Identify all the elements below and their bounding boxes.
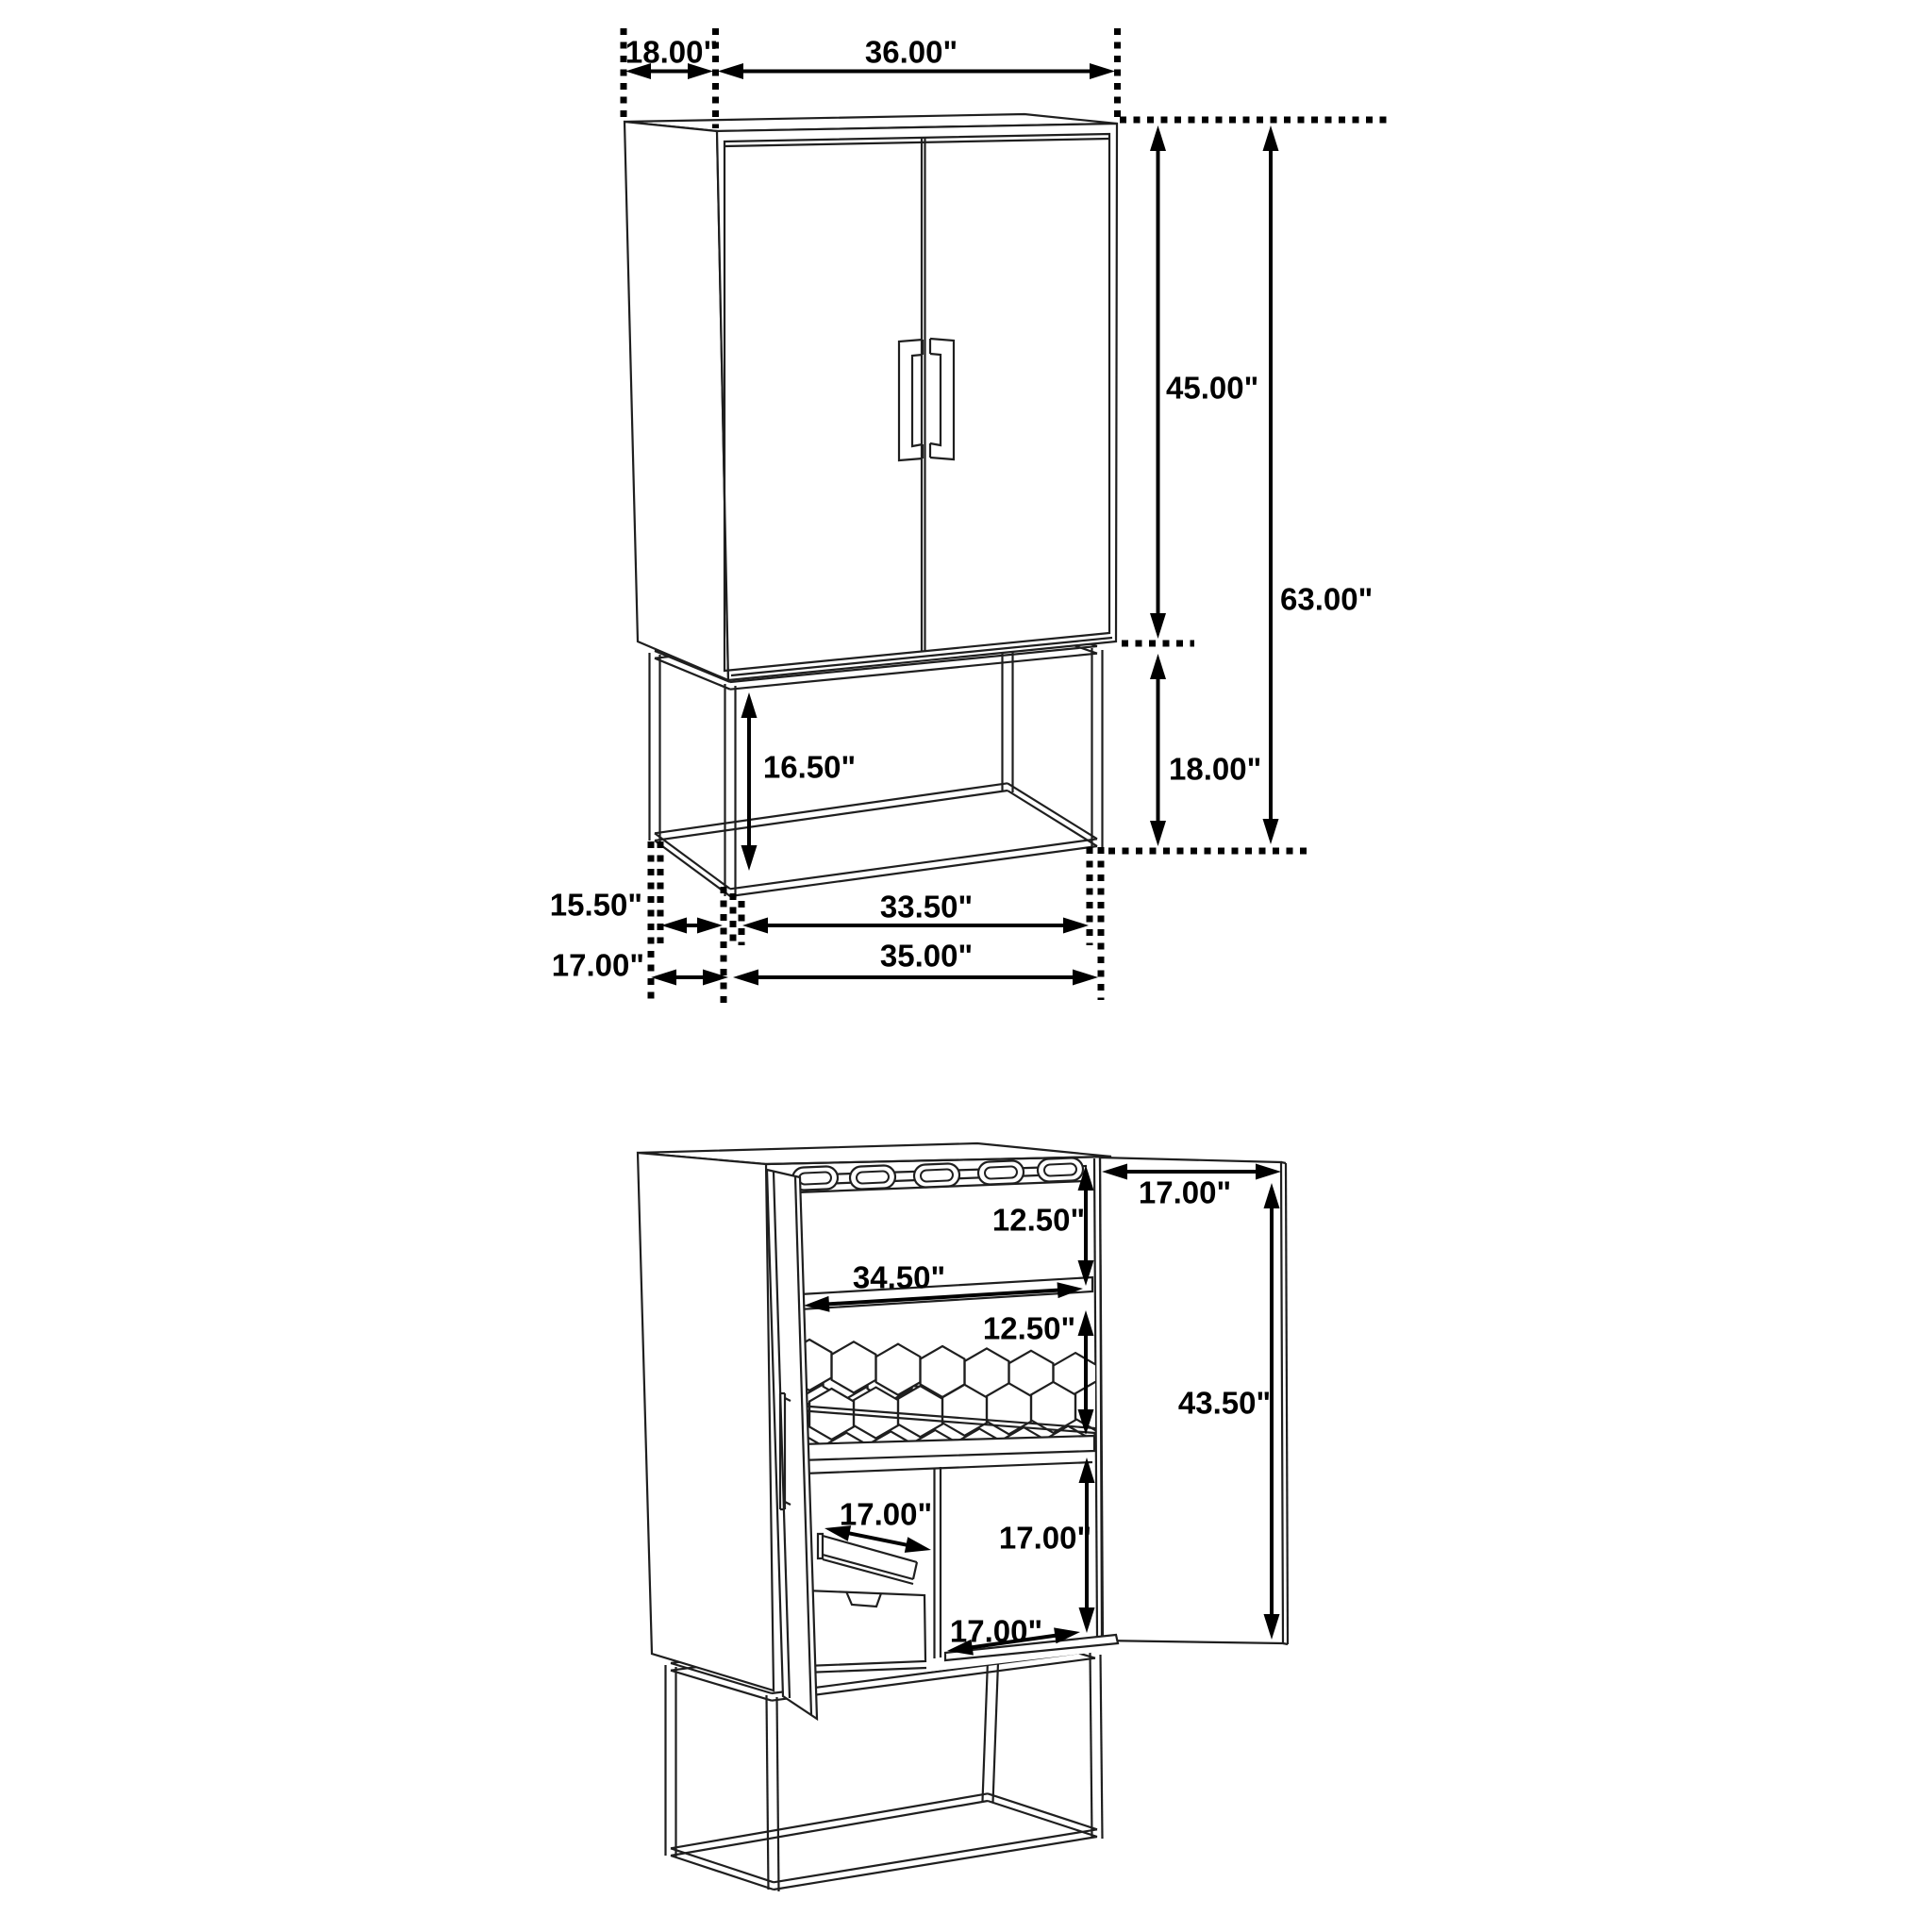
svg-text:16.50": 16.50" [763, 750, 856, 785]
svg-text:17.00": 17.00" [840, 1497, 932, 1532]
svg-text:17.00": 17.00" [950, 1614, 1042, 1649]
svg-text:17.00": 17.00" [999, 1521, 1091, 1556]
svg-text:34.50": 34.50" [853, 1260, 945, 1295]
svg-text:12.50": 12.50" [983, 1311, 1075, 1346]
svg-text:17.00": 17.00" [552, 948, 644, 983]
svg-text:18.00": 18.00" [1169, 752, 1261, 787]
svg-text:17.00": 17.00" [1139, 1175, 1231, 1210]
svg-text:12.50": 12.50" [992, 1203, 1085, 1238]
svg-text:18.00": 18.00" [625, 35, 718, 70]
svg-text:33.50": 33.50" [880, 890, 973, 924]
svg-text:43.50": 43.50" [1178, 1386, 1271, 1421]
svg-text:36.00": 36.00" [865, 35, 958, 70]
svg-text:45.00": 45.00" [1166, 371, 1258, 406]
svg-text:15.50": 15.50" [550, 888, 642, 923]
svg-text:35.00": 35.00" [880, 939, 973, 974]
svg-text:63.00": 63.00" [1280, 582, 1373, 617]
